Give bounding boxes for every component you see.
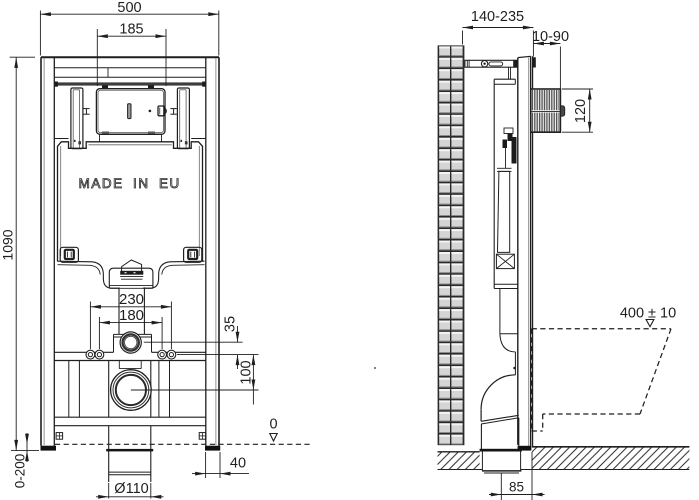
svg-text:0: 0 [269, 417, 277, 433]
svg-text:MADE IN EU: MADE IN EU [79, 176, 181, 191]
svg-text:35: 35 [222, 316, 238, 332]
svg-text:1090: 1090 [0, 229, 15, 260]
svg-text:85: 85 [509, 480, 524, 495]
svg-text:500: 500 [117, 0, 141, 16]
svg-text:185: 185 [119, 22, 143, 38]
svg-text:100: 100 [239, 360, 255, 384]
svg-text:120: 120 [573, 99, 589, 123]
svg-text:180: 180 [119, 307, 144, 324]
svg-text:10-90: 10-90 [532, 29, 569, 45]
svg-text:0-200: 0-200 [12, 454, 27, 489]
svg-text:Ø110: Ø110 [114, 481, 148, 497]
svg-text:230: 230 [119, 291, 144, 308]
svg-text:140-235: 140-235 [471, 9, 524, 25]
svg-text:40: 40 [230, 455, 246, 471]
